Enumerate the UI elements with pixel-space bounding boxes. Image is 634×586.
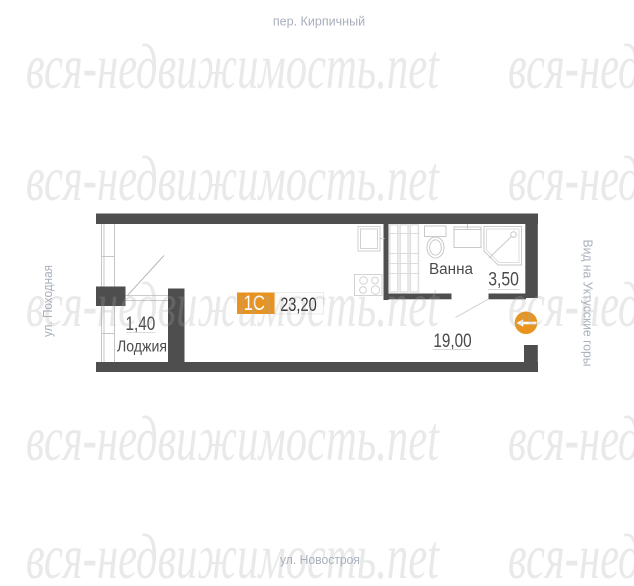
svg-text:19,00: 19,00: [433, 331, 471, 352]
svg-text:ул. Походная: ул. Походная: [40, 265, 55, 337]
svg-text:вся-недвижимость.net: вся-недвижимость.net: [508, 269, 634, 340]
svg-text:вся-недвижимость.net: вся-недвижимость.net: [508, 403, 634, 474]
svg-text:вся-недвижимость.net: вся-недвижимость.net: [26, 31, 440, 102]
svg-text:вся-недвижимость.net: вся-недвижимость.net: [508, 521, 634, 586]
svg-text:вся-недвижимость.net: вся-недвижимость.net: [26, 403, 440, 474]
svg-text:Вид на Уктусские горы: Вид на Уктусские горы: [581, 240, 596, 367]
svg-text:Лоджия: Лоджия: [117, 339, 167, 356]
svg-text:пер. Кирпичный: пер. Кирпичный: [273, 14, 365, 29]
svg-text:вся-недвижимость.net: вся-недвижимость.net: [508, 143, 634, 214]
svg-text:вся-недвижимость.net: вся-недвижимость.net: [26, 143, 440, 214]
svg-text:вся-недвижимость.net: вся-недвижимость.net: [508, 31, 634, 102]
svg-text:вся-недвижимость.net: вся-недвижимость.net: [26, 269, 440, 340]
svg-text:вся-недвижимость.net: вся-недвижимость.net: [26, 521, 440, 586]
svg-text:ул. Новостроя: ул. Новостроя: [280, 552, 360, 567]
